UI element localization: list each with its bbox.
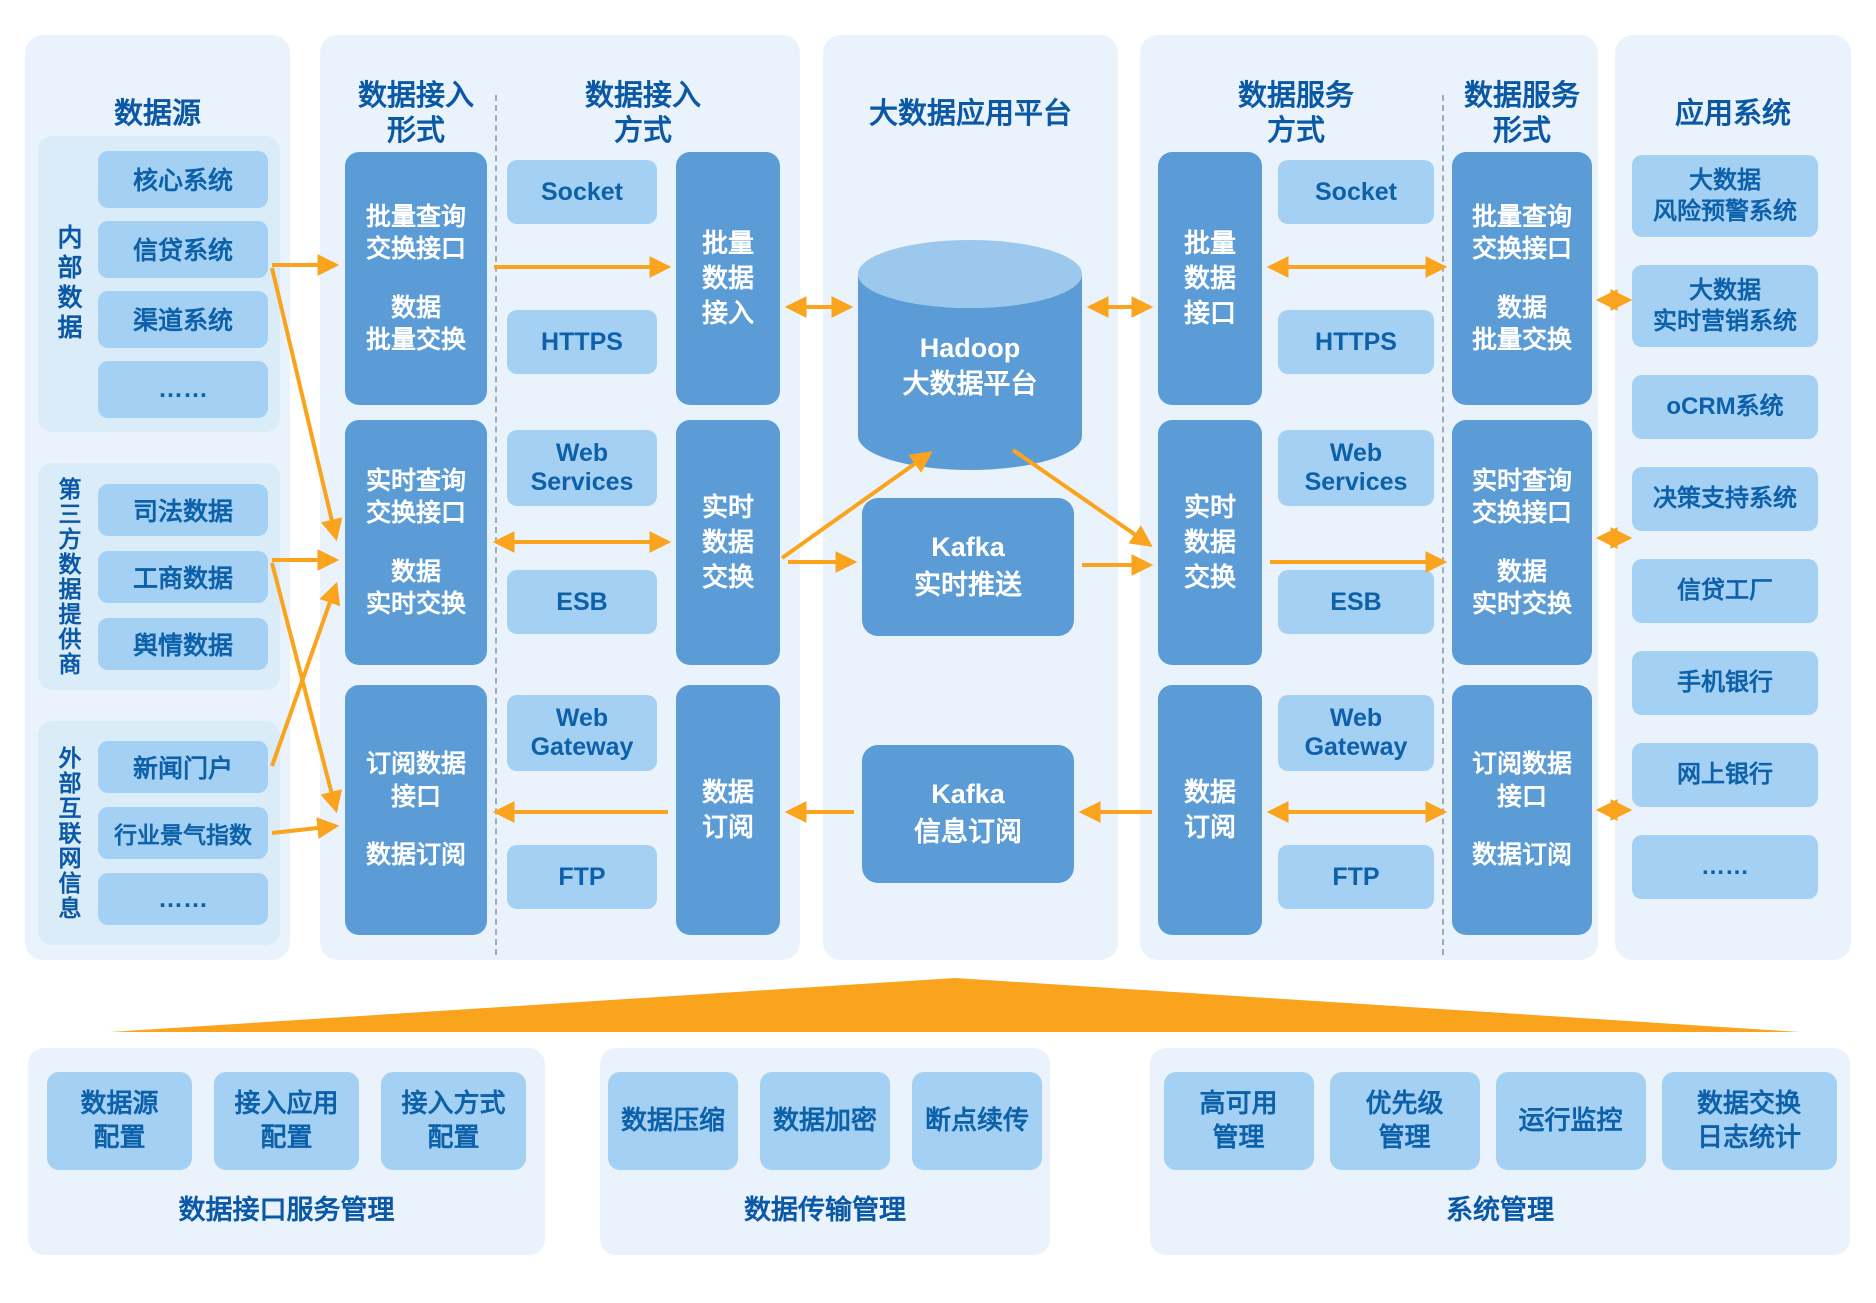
panel-interface-service-mgmt: 数据源 配置 接入应用 配置 接入方式 配置 数据接口服务管理 [28,1048,545,1255]
source-item-ellipsis: …… [98,873,268,925]
block-title: 批量查询 交换接口 [1472,201,1572,266]
bar-data-subscribe: 数据 订阅 [676,685,780,935]
protocol-web-gateway: Web Gateway [1278,695,1434,771]
group-third-party-items: 司法数据 工商数据 舆情数据 [98,463,280,690]
apps-title: 应用系统 [1615,97,1851,132]
source-item: 渠道系统 [98,291,268,348]
mgmt-caption: 数据传输管理 [600,1188,1050,1227]
mgmt-box-row: 数据源 配置 接入应用 配置 接入方式 配置 [28,1048,545,1170]
protocol-web-services: Web Services [1278,430,1434,506]
app-mobile-banking: 手机银行 [1632,651,1818,715]
ingest-form-title: 数据接入 形式 [336,79,496,150]
bar-batch-data-ingest: 批量 数据 接入 [676,152,780,405]
data-sources-title: 数据源 [25,97,290,132]
group-internal-items: 核心系统 信贷系统 渠道系统 …… [98,136,280,432]
app-ocrm: oCRM系统 [1632,375,1818,439]
service-form-title: 数据服务 形式 [1442,79,1602,150]
mgmt-box-access-app-config: 接入应用 配置 [214,1072,359,1170]
group-external-internet: 外部互联网信息 新闻门户 行业景气指数 …… [38,721,280,945]
app-ellipsis: …… [1632,835,1818,899]
source-item: 司法数据 [98,484,268,536]
app-realtime-marketing: 大数据 实时营销系统 [1632,265,1818,347]
mgmt-box-priority: 优先级 管理 [1330,1072,1480,1170]
source-item: 新闻门户 [98,741,268,793]
protocol-web-gateway: Web Gateway [507,695,657,771]
mgmt-caption: 系统管理 [1150,1188,1850,1227]
app-risk-warning: 大数据 风险预警系统 [1632,155,1818,237]
bar-data-subscribe-service: 数据 订阅 [1158,685,1262,935]
block-subscribe-interface: 订阅数据 接口 数据订阅 [345,685,487,935]
bar-realtime-data-exchange-service: 实时 数据 交换 [1158,420,1262,665]
panel-transfer-mgmt: 数据压缩 数据加密 断点续传 数据传输管理 [600,1048,1050,1255]
mgmt-box-row: 高可用 管理 优先级 管理 运行监控 数据交换 日志统计 [1150,1048,1850,1170]
mgmt-box-high-availability: 高可用 管理 [1164,1072,1314,1170]
mgmt-box-exchange-log-stats: 数据交换 日志统计 [1662,1072,1837,1170]
group-third-party-label: 第三方数据提供商 [38,463,98,690]
group-internal-data: 内部数据 核心系统 信贷系统 渠道系统 …… [38,136,280,432]
protocol-esb: ESB [507,570,657,634]
source-item: 核心系统 [98,151,268,208]
block-realtime-exchange-interface: 实时查询 交换接口 数据 实时交换 [345,420,487,665]
panel-application-systems: 应用系统 大数据 风险预警系统 大数据 实时营销系统 oCRM系统 决策支持系统… [1615,35,1851,960]
block-subtitle: 数据 批量交换 [366,292,466,357]
panel-system-mgmt: 高可用 管理 优先级 管理 运行监控 数据交换 日志统计 系统管理 [1150,1048,1850,1255]
source-item: 工商数据 [98,551,268,603]
block-subtitle: 数据订阅 [1472,839,1572,872]
mgmt-box-access-mode-config: 接入方式 配置 [381,1072,526,1170]
mgmt-box-row: 数据压缩 数据加密 断点续传 [600,1048,1050,1170]
source-item-ellipsis: …… [98,361,268,418]
block-batch-exchange-interface-service: 批量查询 交换接口 数据 批量交换 [1452,152,1592,405]
kafka-realtime-push: Kafka 实时推送 [862,498,1074,636]
block-subtitle: 数据 实时交换 [366,556,466,621]
protocol-web-services: Web Services [507,430,657,506]
flow-triangle [110,978,1800,1032]
protocol-https: HTTPS [1278,310,1434,374]
group-external-items: 新闻门户 行业景气指数 …… [98,721,280,945]
protocol-ftp: FTP [507,845,657,909]
block-subtitle: 数据 实时交换 [1472,556,1572,621]
group-third-party: 第三方数据提供商 司法数据 工商数据 舆情数据 [38,463,280,690]
diagram-canvas: 数据源 内部数据 核心系统 信贷系统 渠道系统 …… 第三方数据提供商 司法数据… [0,0,1876,1303]
protocol-esb: ESB [1278,570,1434,634]
bar-realtime-data-exchange: 实时 数据 交换 [676,420,780,665]
block-title: 订阅数据 接口 [1472,748,1572,813]
panel-data-sources: 数据源 内部数据 核心系统 信贷系统 渠道系统 …… 第三方数据提供商 司法数据… [25,35,290,960]
divider-ingest [495,95,497,955]
kafka-message-subscribe: Kafka 信息订阅 [862,745,1074,883]
mgmt-box-compression: 数据压缩 [608,1072,738,1170]
block-subscribe-interface-service: 订阅数据 接口 数据订阅 [1452,685,1592,935]
protocol-socket: Socket [1278,160,1434,224]
protocol-ftp: FTP [1278,845,1434,909]
group-external-label: 外部互联网信息 [38,721,98,945]
block-title: 批量查询 交换接口 [366,201,466,266]
app-credit-factory: 信贷工厂 [1632,559,1818,623]
protocol-https: HTTPS [507,310,657,374]
source-item: 信贷系统 [98,221,268,278]
block-realtime-exchange-interface-service: 实时查询 交换接口 数据 实时交换 [1452,420,1592,665]
panel-bigdata-platform: 大数据应用平台 Hadoop 大数据平台 Kafka 实时推送 Kafka 信息… [823,35,1118,960]
mgmt-box-monitoring: 运行监控 [1496,1072,1646,1170]
app-decision-support: 决策支持系统 [1632,467,1818,531]
divider-service [1442,95,1444,955]
hadoop-label: Hadoop 大数据平台 [858,330,1082,403]
panel-data-service: 数据服务 方式 数据服务 形式 批量 数据 接口 实时 数据 交换 数据 订阅 … [1140,35,1598,960]
platform-title: 大数据应用平台 [823,97,1118,132]
ingest-mode-title: 数据接入 方式 [563,79,723,150]
block-title: 订阅数据 接口 [366,748,466,813]
mgmt-box-encryption: 数据加密 [760,1072,890,1170]
block-title: 实时查询 交换接口 [1472,465,1572,530]
app-online-banking: 网上银行 [1632,743,1818,807]
source-item: 行业景气指数 [98,807,268,859]
panel-data-ingest: 数据接入 形式 数据接入 方式 批量查询 交换接口 数据 批量交换 实时查询 交… [320,35,800,960]
block-subtitle: 数据订阅 [366,839,466,872]
group-internal-label: 内部数据 [38,136,98,432]
block-batch-exchange-interface: 批量查询 交换接口 数据 批量交换 [345,152,487,405]
block-title: 实时查询 交换接口 [366,465,466,530]
block-subtitle: 数据 批量交换 [1472,292,1572,357]
protocol-socket: Socket [507,160,657,224]
service-mode-title: 数据服务 方式 [1216,79,1376,150]
source-item: 舆情数据 [98,618,268,670]
mgmt-box-resume: 断点续传 [912,1072,1042,1170]
mgmt-caption: 数据接口服务管理 [28,1188,545,1227]
bar-batch-data-interface: 批量 数据 接口 [1158,152,1262,405]
mgmt-box-datasource-config: 数据源 配置 [47,1072,192,1170]
